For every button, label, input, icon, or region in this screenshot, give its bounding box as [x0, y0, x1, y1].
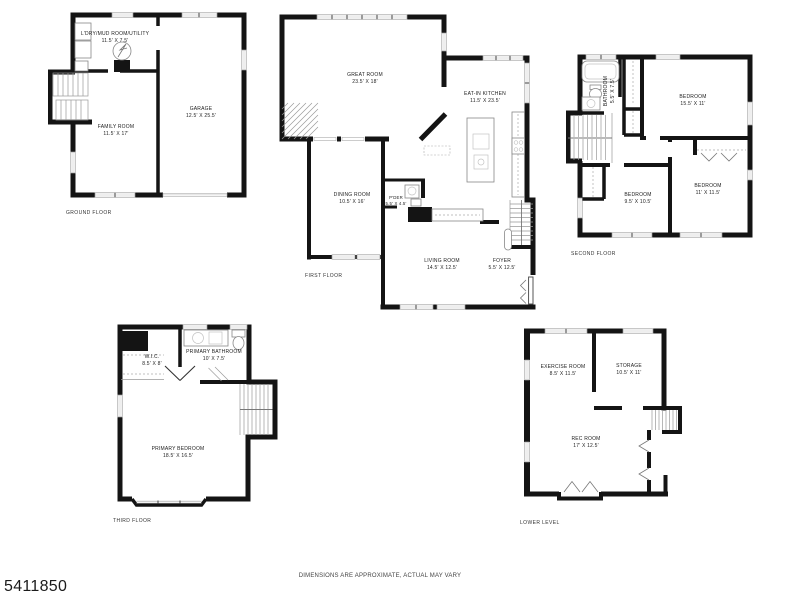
room-label-living-room: LIVING ROOM 14.5' X 12.5'	[424, 258, 460, 272]
room-dims: 12.5' X 25.5'	[186, 113, 216, 120]
room-dims: 10' X 7.5'	[186, 356, 242, 363]
chimney	[120, 331, 148, 351]
room-dims: 17' X 12.5'	[571, 443, 600, 450]
floor-plan-ground: L'DRY/MUD ROOM/UTILITY 11.5' X 7.5' FAMI…	[48, 10, 253, 230]
ground-stairs-icon	[53, 73, 88, 120]
room-label-primary-bedroom: PRIMARY BEDROOM 18.5' X 16.5'	[152, 446, 205, 460]
front-door-icon	[521, 277, 534, 304]
dimensions-disclaimer: DIMENSIONS ARE APPROXIMATE, ACTUAL MAY V…	[299, 573, 462, 579]
room-label-rec-room: REC ROOM 17' X 12.5'	[571, 436, 600, 450]
room-name: FAMILY ROOM	[98, 124, 134, 131]
lower-level-drawing	[518, 322, 692, 534]
room-dims: 10.5' X 16'	[334, 199, 371, 206]
room-name: FOYER	[488, 258, 515, 265]
room-name: PRIMARY BEDROOM	[152, 446, 205, 453]
lower-stairs-icon	[652, 410, 677, 430]
room-name: BEDROOM	[679, 94, 706, 101]
room-dims: 5.5' X 4.5'	[385, 201, 406, 207]
room-name: PRIMARY BATHROOM	[186, 349, 242, 356]
floor-plan-third: W.I.C. 8.5' X 8' PRIMARY BATHROOM 10' X …	[108, 322, 290, 534]
toilet-icon	[232, 330, 245, 337]
kitchen-island	[467, 118, 494, 182]
room-dims: 10.5' X 11'	[616, 370, 642, 377]
toilet-icon	[411, 199, 421, 206]
room-dims: 11.5' X 23.5'	[464, 98, 506, 105]
utility-sink-icon	[75, 61, 88, 71]
third-stairs-icon	[240, 384, 273, 435]
room-label-bedroom-1: BEDROOM 15.5' X 11'	[679, 94, 706, 108]
room-label-exercise-room: EXERCISE ROOM 8.5' X 11.5'	[541, 364, 586, 378]
first-stairs-icon	[505, 200, 534, 250]
room-name: BEDROOM	[694, 183, 721, 190]
room-name: GARAGE	[186, 106, 216, 113]
room-name: REC ROOM	[571, 436, 600, 443]
floor-plan-first: GREAT ROOM 23.5' X 18' EAT-IN KITCHEN 11…	[277, 8, 539, 318]
chimney	[114, 60, 130, 72]
room-name: LIVING ROOM	[424, 258, 460, 265]
room-label-family-room: FAMILY ROOM 11.5' X 17'	[98, 124, 134, 138]
room-dims: 11.5' X 7.5'	[81, 38, 149, 45]
room-name: BATHROOM	[603, 76, 610, 106]
room-dims: 9.5' X 10.5'	[624, 199, 651, 206]
room-label-great-room: GREAT ROOM 23.5' X 18'	[347, 72, 383, 86]
powder-fixtures	[405, 185, 421, 206]
room-label-garage: GARAGE 12.5' X 25.5'	[186, 106, 216, 120]
room-label-laundry: L'DRY/MUD ROOM/UTILITY 11.5' X 7.5'	[81, 31, 149, 45]
room-name: L'DRY/MUD ROOM/UTILITY	[81, 31, 149, 38]
ground-floor-drawing	[48, 10, 253, 205]
room-name: BEDROOM	[624, 192, 651, 199]
floor-plan-second: BATHROOM 5.5' X 7.5' BEDROOM 15.5' X 11'…	[566, 53, 762, 265]
room-name: EXERCISE ROOM	[541, 364, 586, 371]
room-dims: 5.5' X 7.5'	[610, 76, 617, 106]
room-label-bedroom-3: BEDROOM 11' X 11.5'	[694, 183, 721, 197]
floor-label-second: SECOND FLOOR	[571, 251, 616, 257]
floor-label-third: THIRD FLOOR	[113, 518, 151, 524]
fireplace-icon	[282, 103, 318, 139]
room-name: GREAT ROOM	[347, 72, 383, 79]
floor-label-lower: LOWER LEVEL	[520, 520, 560, 526]
room-dims: 8.5' X 8'	[142, 361, 162, 368]
room-name: DINING ROOM	[334, 192, 371, 199]
floor-plan-lower: EXERCISE ROOM 8.5' X 11.5' STORAGE 10.5'…	[518, 322, 692, 534]
lower-walls	[525, 329, 683, 499]
room-label-foyer: FOYER 5.5' X 12.5'	[488, 258, 515, 272]
chimney	[408, 207, 432, 222]
room-dims: 11.5' X 17'	[98, 131, 134, 138]
room-name: EAT-IN KITCHEN	[464, 91, 506, 98]
room-dims: 5.5' X 12.5'	[488, 265, 515, 272]
kitchen-fixtures	[432, 112, 525, 221]
room-label-storage: STORAGE 10.5' X 11'	[616, 363, 642, 377]
second-floor-drawing	[566, 53, 762, 265]
room-label-bathroom: BATHROOM 5.5' X 7.5'	[603, 76, 617, 106]
room-dims: 11' X 11.5'	[694, 190, 721, 197]
stove-icon	[512, 138, 525, 154]
double-vanity-icon	[184, 330, 228, 346]
vanity-icon	[582, 97, 600, 110]
third-bath-fixtures	[184, 330, 245, 350]
room-label-bedroom-2: BEDROOM 9.5' X 10.5'	[624, 192, 651, 206]
second-stairs-icon	[568, 113, 612, 163]
room-dims: 18.5' X 16.5'	[152, 453, 205, 460]
room-label-wic: W.I.C. 8.5' X 8'	[142, 354, 162, 368]
room-dims: 14.5' X 12.5'	[424, 265, 460, 272]
room-label-kitchen: EAT-IN KITCHEN 11.5' X 23.5'	[464, 91, 506, 105]
floor-label-ground: GROUND FLOOR	[66, 210, 112, 216]
room-dims: 8.5' X 11.5'	[541, 371, 586, 378]
room-dims: 23.5' X 18'	[347, 79, 383, 86]
room-name: W.I.C.	[142, 354, 162, 361]
room-label-powder-room: P'DER 5.5' X 4.5'	[385, 195, 406, 207]
floor-label-first: FIRST FLOOR	[305, 273, 342, 279]
room-name: STORAGE	[616, 363, 642, 370]
room-label-primary-bathroom: PRIMARY BATHROOM 10' X 7.5'	[186, 349, 242, 363]
room-dims: 15.5' X 11'	[679, 101, 706, 108]
room-label-dining-room: DINING ROOM 10.5' X 16'	[334, 192, 371, 206]
listing-id-watermark: 5411850	[4, 578, 67, 596]
